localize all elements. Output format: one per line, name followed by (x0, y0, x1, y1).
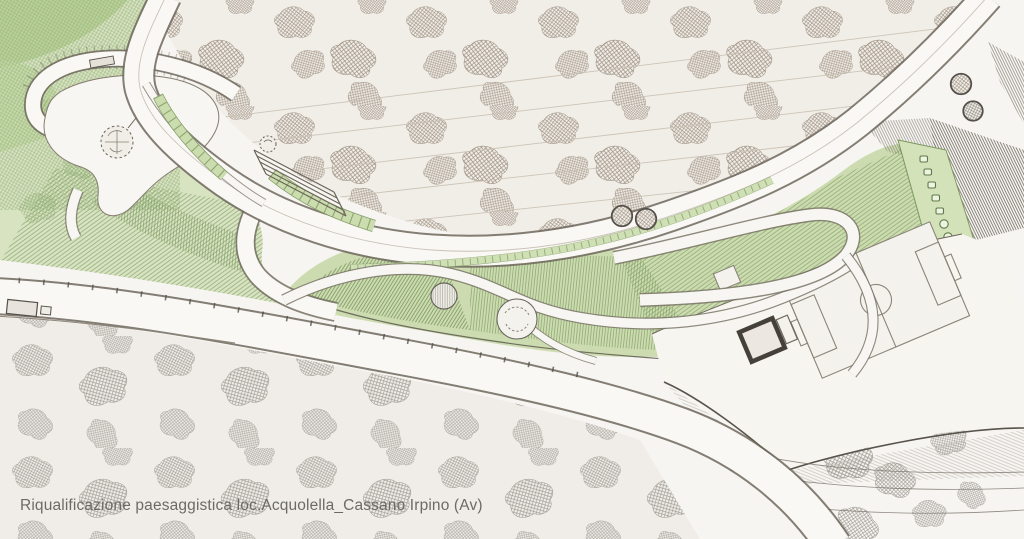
plaza-circle-small (431, 283, 457, 309)
masterplan-canvas: Riqualificazione paesaggistica loc.Acquo… (0, 0, 1024, 539)
site-plan-drawing (0, 0, 1024, 539)
viewpoint-circle (260, 136, 276, 152)
plaza-circle-large (497, 299, 537, 339)
caption-title: Riqualificazione paesaggistica loc.Acquo… (20, 497, 483, 515)
